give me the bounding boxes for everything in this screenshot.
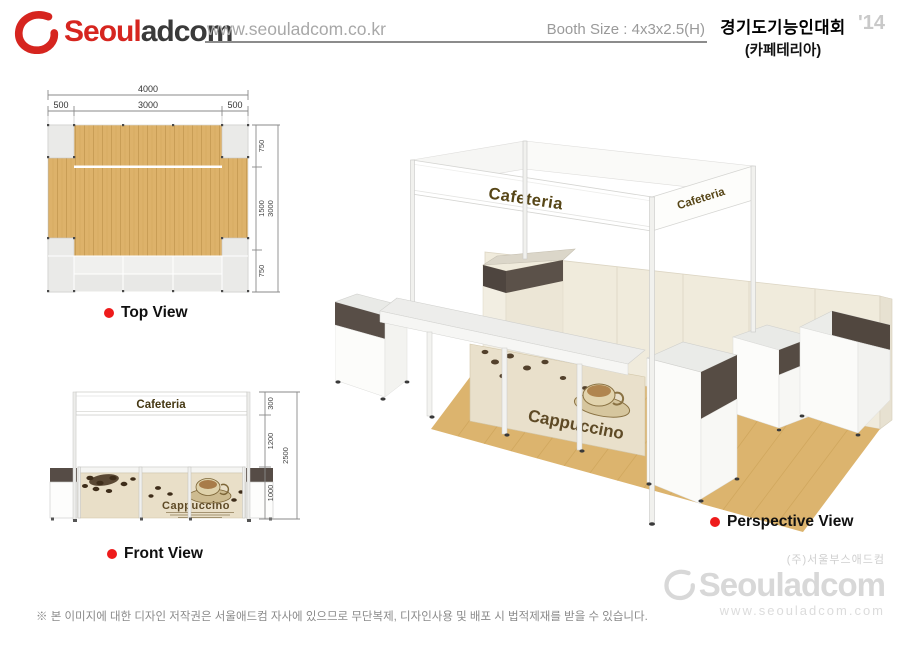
footer-swoosh-icon	[663, 568, 697, 601]
near-frame-post	[650, 197, 655, 523]
front-fascia-sign: Cafeteria	[136, 399, 186, 411]
year-label: '14	[858, 12, 885, 35]
front-view-label: Front View	[107, 545, 203, 563]
front-counter-row-inner	[74, 256, 222, 274]
top-view-label: Top View	[104, 304, 188, 322]
perspective-view-label: Perspective View	[710, 513, 853, 531]
dim-total-height: 2500	[281, 447, 290, 464]
design-sheet: Seouladcom www.seouladcom.co.kr Booth Si…	[0, 0, 900, 651]
footer-company: (주)서울부스애드컴	[640, 551, 885, 567]
header-logo: Seouladcom	[14, 10, 232, 54]
dim-depth-mid: 1500	[257, 200, 266, 217]
front-fascia: Cafeteria	[76, 392, 247, 415]
dim-total-depth: 3000	[266, 200, 275, 217]
red-bullet-icon	[107, 549, 117, 559]
copyright-disclaimer: ※ 본 이미지에 대한 디자인 저작권은 서울애드컴 자사에 있으므로 무단복제…	[36, 608, 676, 624]
header-website: www.seouladcom.co.kr	[207, 19, 386, 40]
dim-center: 3000	[138, 100, 158, 110]
red-bullet-icon	[710, 517, 720, 527]
back-wall-line	[74, 166, 222, 169]
top-view-label-text: Top View	[121, 304, 188, 322]
front-view-drawing: Cafeteria Cappu	[38, 388, 304, 530]
event-title-block: 경기도기능인대회 (카페테리아)	[708, 18, 858, 60]
near-corner-counter	[647, 342, 737, 504]
brand-part1: Seoul	[64, 15, 141, 48]
cappuccino-text: Cappuccino	[162, 500, 230, 512]
footer-url: www.seouladcom.com	[640, 603, 885, 618]
dim-depth-top: 750	[257, 140, 266, 153]
dim-depth-bottom: 750	[257, 265, 266, 278]
dim-total-width: 4000	[138, 84, 158, 94]
perspective-view-label-text: Perspective View	[727, 513, 853, 531]
booth-size-label: Booth Size : 4x3x2.5(H)	[460, 21, 705, 38]
dim-right: 500	[227, 100, 242, 110]
footer-brand: Seouladcom	[699, 568, 885, 601]
dim-sign-height: 300	[266, 397, 275, 410]
front-counter: Cappuccino	[78, 467, 245, 518]
top-view-drawing: 4000 500 3000 500	[40, 80, 280, 330]
header-rule	[205, 41, 707, 43]
front-wall	[76, 415, 247, 467]
perspective-drawing: Cafeteria Cafeteria	[335, 100, 895, 560]
red-bullet-icon	[104, 308, 114, 318]
dim-counter-height: 1000	[266, 485, 275, 502]
dim-left: 500	[53, 100, 68, 110]
footer-watermark: (주)서울부스애드컴 Seouladcom www.seouladcom.com	[640, 551, 885, 618]
event-title: 경기도기능인대회	[708, 18, 858, 39]
dim-wall-height: 1200	[266, 433, 275, 450]
top-view-plan	[47, 124, 249, 292]
event-subtitle: (카페테리아)	[708, 39, 858, 60]
brand-swoosh-icon	[14, 10, 60, 54]
front-counter-row-outer	[74, 274, 222, 292]
front-view-label-text: Front View	[124, 545, 203, 563]
